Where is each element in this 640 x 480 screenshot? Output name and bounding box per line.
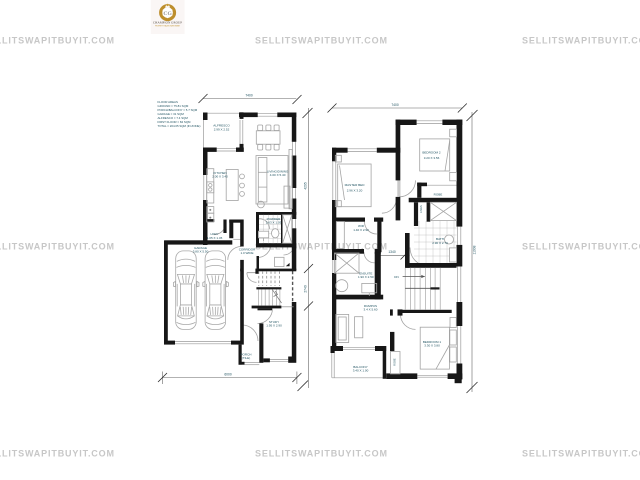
svg-text:ROBE: ROBE (434, 192, 443, 196)
svg-text:SELLITSWAPITBUYIT.COM: SELLITSWAPITBUYIT.COM (0, 242, 115, 252)
svg-text:1.95 X 2.90: 1.95 X 2.90 (266, 323, 282, 327)
svg-text:BEDROOM 2: BEDROOM 2 (422, 150, 441, 154)
svg-text:SELLITSWAPITBUYIT.COM: SELLITSWAPITBUYIT.COM (522, 36, 640, 46)
svg-text:1.0 WIDE: 1.0 WIDE (240, 251, 253, 255)
svg-text:SELLITSWAPITBUYIT.COM: SELLITSWAPITBUYIT.COM (0, 449, 115, 459)
svg-text:7400: 7400 (245, 94, 253, 98)
svg-text:2740: 2740 (304, 285, 308, 293)
svg-text:TOTAL = 204.05 SQM (IN ZONE): TOTAL = 204.05 SQM (IN ZONE) (158, 124, 201, 128)
svg-text:2.90 X 2.70: 2.90 X 2.70 (432, 241, 448, 245)
svg-text:11908: 11908 (472, 245, 476, 254)
svg-text:2.63 X 1.05: 2.63 X 1.05 (266, 220, 282, 224)
svg-text:CHAMPION GROUP: CHAMPION GROUP (153, 21, 182, 25)
svg-text:3.80 X 5.50: 3.80 X 5.50 (193, 250, 209, 254)
svg-text:SELLITSWAPITBUYIT.COM: SELLITSWAPITBUYIT.COM (255, 449, 388, 459)
svg-text:MASTER BED: MASTER BED (345, 183, 366, 187)
svg-text:CG: CG (163, 11, 172, 17)
svg-text:1.90 X 2.50: 1.90 X 2.50 (358, 275, 374, 279)
svg-text:2.96 X 3.20: 2.96 X 3.20 (347, 188, 363, 192)
svg-text:ROBE: ROBE (392, 358, 396, 366)
svg-text:3.20 X 3.56: 3.20 X 3.56 (424, 156, 440, 160)
svg-text:1.05 X 1.45: 1.05 X 1.45 (207, 236, 223, 240)
svg-text:4295: 4295 (304, 182, 308, 190)
svg-text:SELLITSWAPITBUYIT.COM: SELLITSWAPITBUYIT.COM (522, 242, 640, 252)
svg-text:1340: 1340 (388, 250, 396, 254)
svg-text:4.00 X 5.40: 4.00 X 5.40 (270, 173, 286, 177)
svg-text:1.40 X 2.92: 1.40 X 2.92 (353, 228, 369, 232)
svg-text:7400: 7400 (391, 103, 399, 107)
svg-text:6000: 6000 (224, 373, 232, 377)
svg-text:SELLITSWAPITBUYIT.COM: SELLITSWAPITBUYIT.COM (522, 449, 640, 459)
svg-text:2.99 X 2.52: 2.99 X 2.52 (214, 127, 230, 131)
svg-text:2.00 X 3.40: 2.00 X 3.40 (212, 175, 228, 179)
svg-text:3.30 X 3.80: 3.30 X 3.80 (424, 344, 440, 348)
svg-text:SELLITSWAPITBUYIT.COM: SELLITSWAPITBUYIT.COM (0, 36, 115, 46)
svg-text:LINEN: LINEN (419, 205, 423, 213)
svg-text:3.4 X 5.60: 3.4 X 5.60 (364, 308, 378, 312)
svg-text:(TILE): (TILE) (242, 356, 250, 360)
svg-text:3.40 X 1.00: 3.40 X 1.00 (353, 369, 369, 373)
svg-text:SELLITSWAPITBUYIT.COM: SELLITSWAPITBUYIT.COM (255, 36, 388, 46)
svg-text:DN: DN (394, 275, 398, 279)
